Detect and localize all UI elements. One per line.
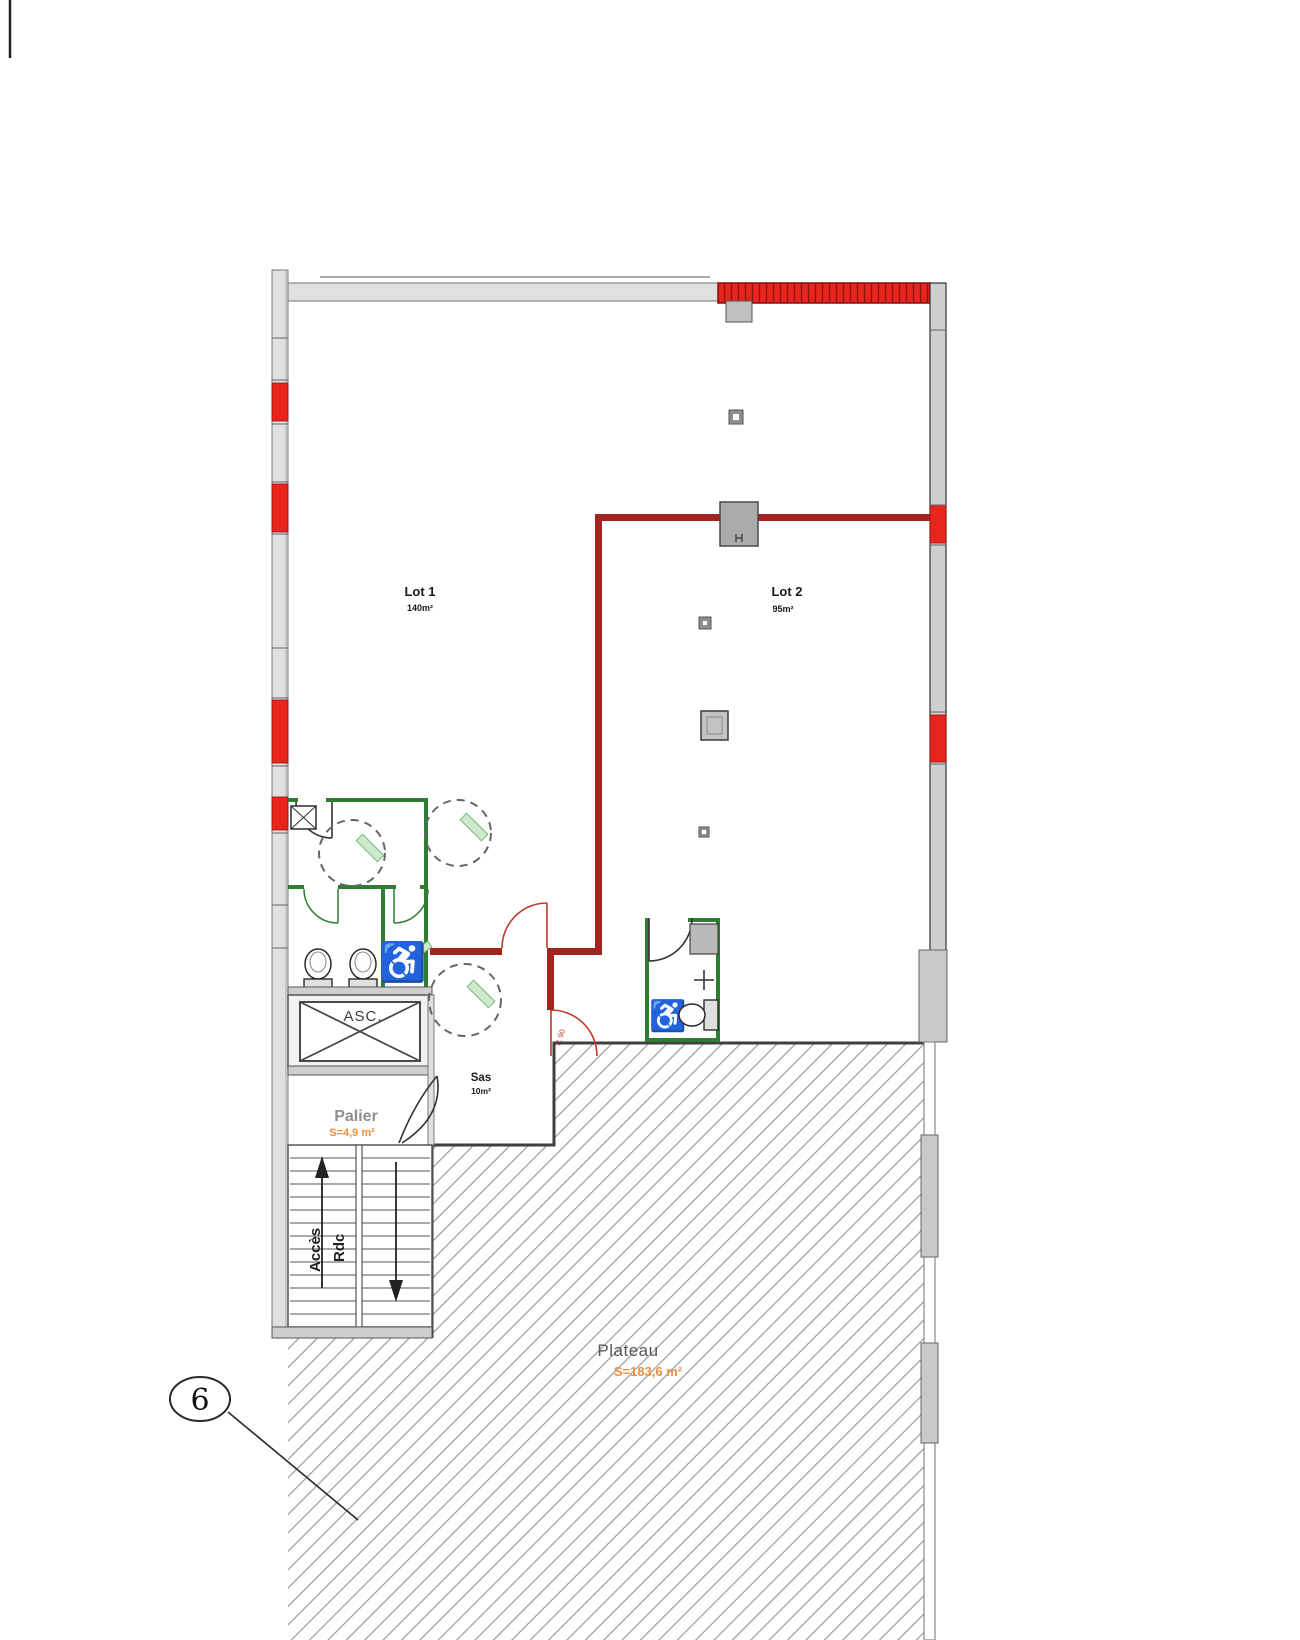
top-wall-junction-box — [726, 301, 752, 322]
sas-area-label: 10m² — [471, 1086, 491, 1096]
palier-area-label: S=4,9 m² — [329, 1127, 375, 1139]
left-wall-red-segment — [272, 383, 288, 421]
lot1-label: Lot 1 — [404, 584, 435, 599]
wc-block-left: ♿ — [288, 798, 491, 995]
floor-plan-drawing: P. 90 — [0, 0, 1300, 1640]
grab-bar-icon — [467, 980, 495, 1008]
duct-box — [720, 502, 758, 546]
right-facade-sill — [919, 950, 947, 1042]
structural-columns — [699, 410, 743, 837]
right-wall-red-segment — [930, 715, 946, 762]
door-swing-lot1 — [502, 903, 547, 948]
grab-bar-icon — [460, 813, 488, 841]
left-wall-red-segment — [272, 484, 288, 532]
wc-block-right: ♿ — [645, 918, 720, 1042]
grab-bar-icon — [356, 834, 384, 862]
lot2-area-label: 95m² — [772, 604, 793, 614]
sas-east-wall — [547, 948, 554, 1010]
lot2-north-wall — [598, 514, 930, 521]
left-wall-red-segment — [272, 700, 288, 763]
right-facade-mullion — [921, 1343, 938, 1443]
elevator-label: ASC. — [343, 1008, 382, 1025]
stairs-access-label: Accès — [307, 1228, 324, 1272]
toilet-icon — [304, 949, 332, 991]
sas-label: Sas — [471, 1072, 491, 1084]
lot1-south-wall — [430, 948, 502, 955]
top-wall-red — [718, 283, 930, 303]
wc-stall-door-arc — [394, 889, 428, 923]
callout-number: 6 — [190, 1383, 209, 1418]
lot-divider-wall — [595, 514, 602, 955]
left-wall-red-segment — [272, 797, 288, 830]
lot1-area-label: 140m² — [407, 603, 433, 613]
sas-room: Sas 10m² — [429, 964, 501, 1096]
wc-stall-door-arc — [304, 889, 338, 923]
stair-bottom-wall — [272, 1327, 432, 1338]
plateau-label: Plateau — [597, 1341, 658, 1360]
lot1-south-wall — [547, 948, 598, 955]
staircase: Accès Rdc — [288, 1145, 432, 1327]
wheelchair-icon: ♿ — [379, 940, 426, 984]
right-facade-mullion — [921, 1135, 938, 1257]
plateau-area-label: S=183,6 m² — [614, 1364, 683, 1379]
lot2-label: Lot 2 — [771, 584, 802, 599]
cistern-box — [690, 924, 718, 954]
toilet-icon — [349, 949, 377, 991]
washbasin-icon — [291, 806, 316, 829]
floor-plan-page: P. 90 — [0, 0, 1300, 1640]
core-block: ASC. Palier S=4,9 m² Accès Rdc — [272, 987, 438, 1338]
right-wall-red-segment — [930, 505, 946, 543]
right-wall — [930, 283, 946, 955]
palier-label: Palier — [334, 1108, 378, 1125]
top-wall-gray — [272, 283, 718, 301]
right-facade-glazing — [924, 1042, 935, 1640]
stairs-rdc-label: Rdc — [331, 1234, 348, 1262]
